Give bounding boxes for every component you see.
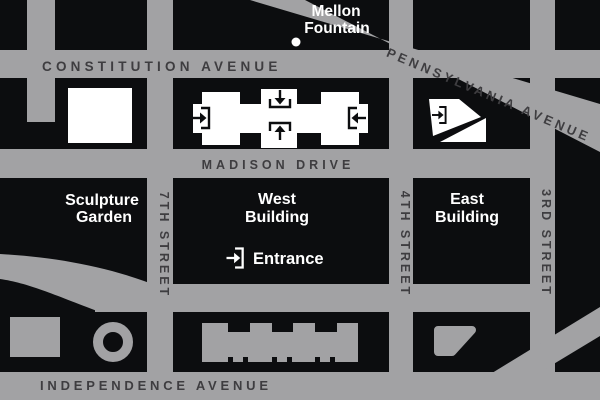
- mellon-fountain-dot: [292, 38, 301, 47]
- sculpture-garden-fountain-footprint: [68, 88, 132, 143]
- west-building-label-line1: West: [258, 191, 297, 208]
- west-building-label-line2: Building: [245, 209, 309, 226]
- east-building-label-line2: Building: [435, 209, 499, 226]
- sculpture-garden-label-line1: Sculpture: [65, 192, 139, 209]
- nga-area-map: CONSTITUTION AVENUE MADISON DRIVE INDEPE…: [0, 0, 600, 400]
- mellon-fountain-label-line2: Fountain: [304, 20, 369, 37]
- street-label-independence-avenue: INDEPENDENCE AVENUE: [40, 378, 272, 393]
- mellon-fountain-label-line1: Mellon: [311, 3, 360, 20]
- map-canvas: CONSTITUTION AVENUE MADISON DRIVE INDEPE…: [0, 0, 600, 400]
- entrance-label: Entrance: [253, 250, 324, 268]
- sculpture-garden-label-line2: Garden: [76, 209, 132, 226]
- street-label-3rd-street: 3RD STREET: [539, 189, 553, 297]
- mall-square-shape: [10, 317, 60, 357]
- street-label-madison-drive: MADISON DRIVE: [202, 158, 355, 172]
- street-label-4th-street: 4TH STREET: [398, 191, 412, 297]
- street-label-constitution-avenue: CONSTITUTION AVENUE: [42, 59, 282, 74]
- east-building-label-line1: East: [450, 191, 484, 208]
- street-label-7th-street: 7TH STREET: [157, 192, 171, 298]
